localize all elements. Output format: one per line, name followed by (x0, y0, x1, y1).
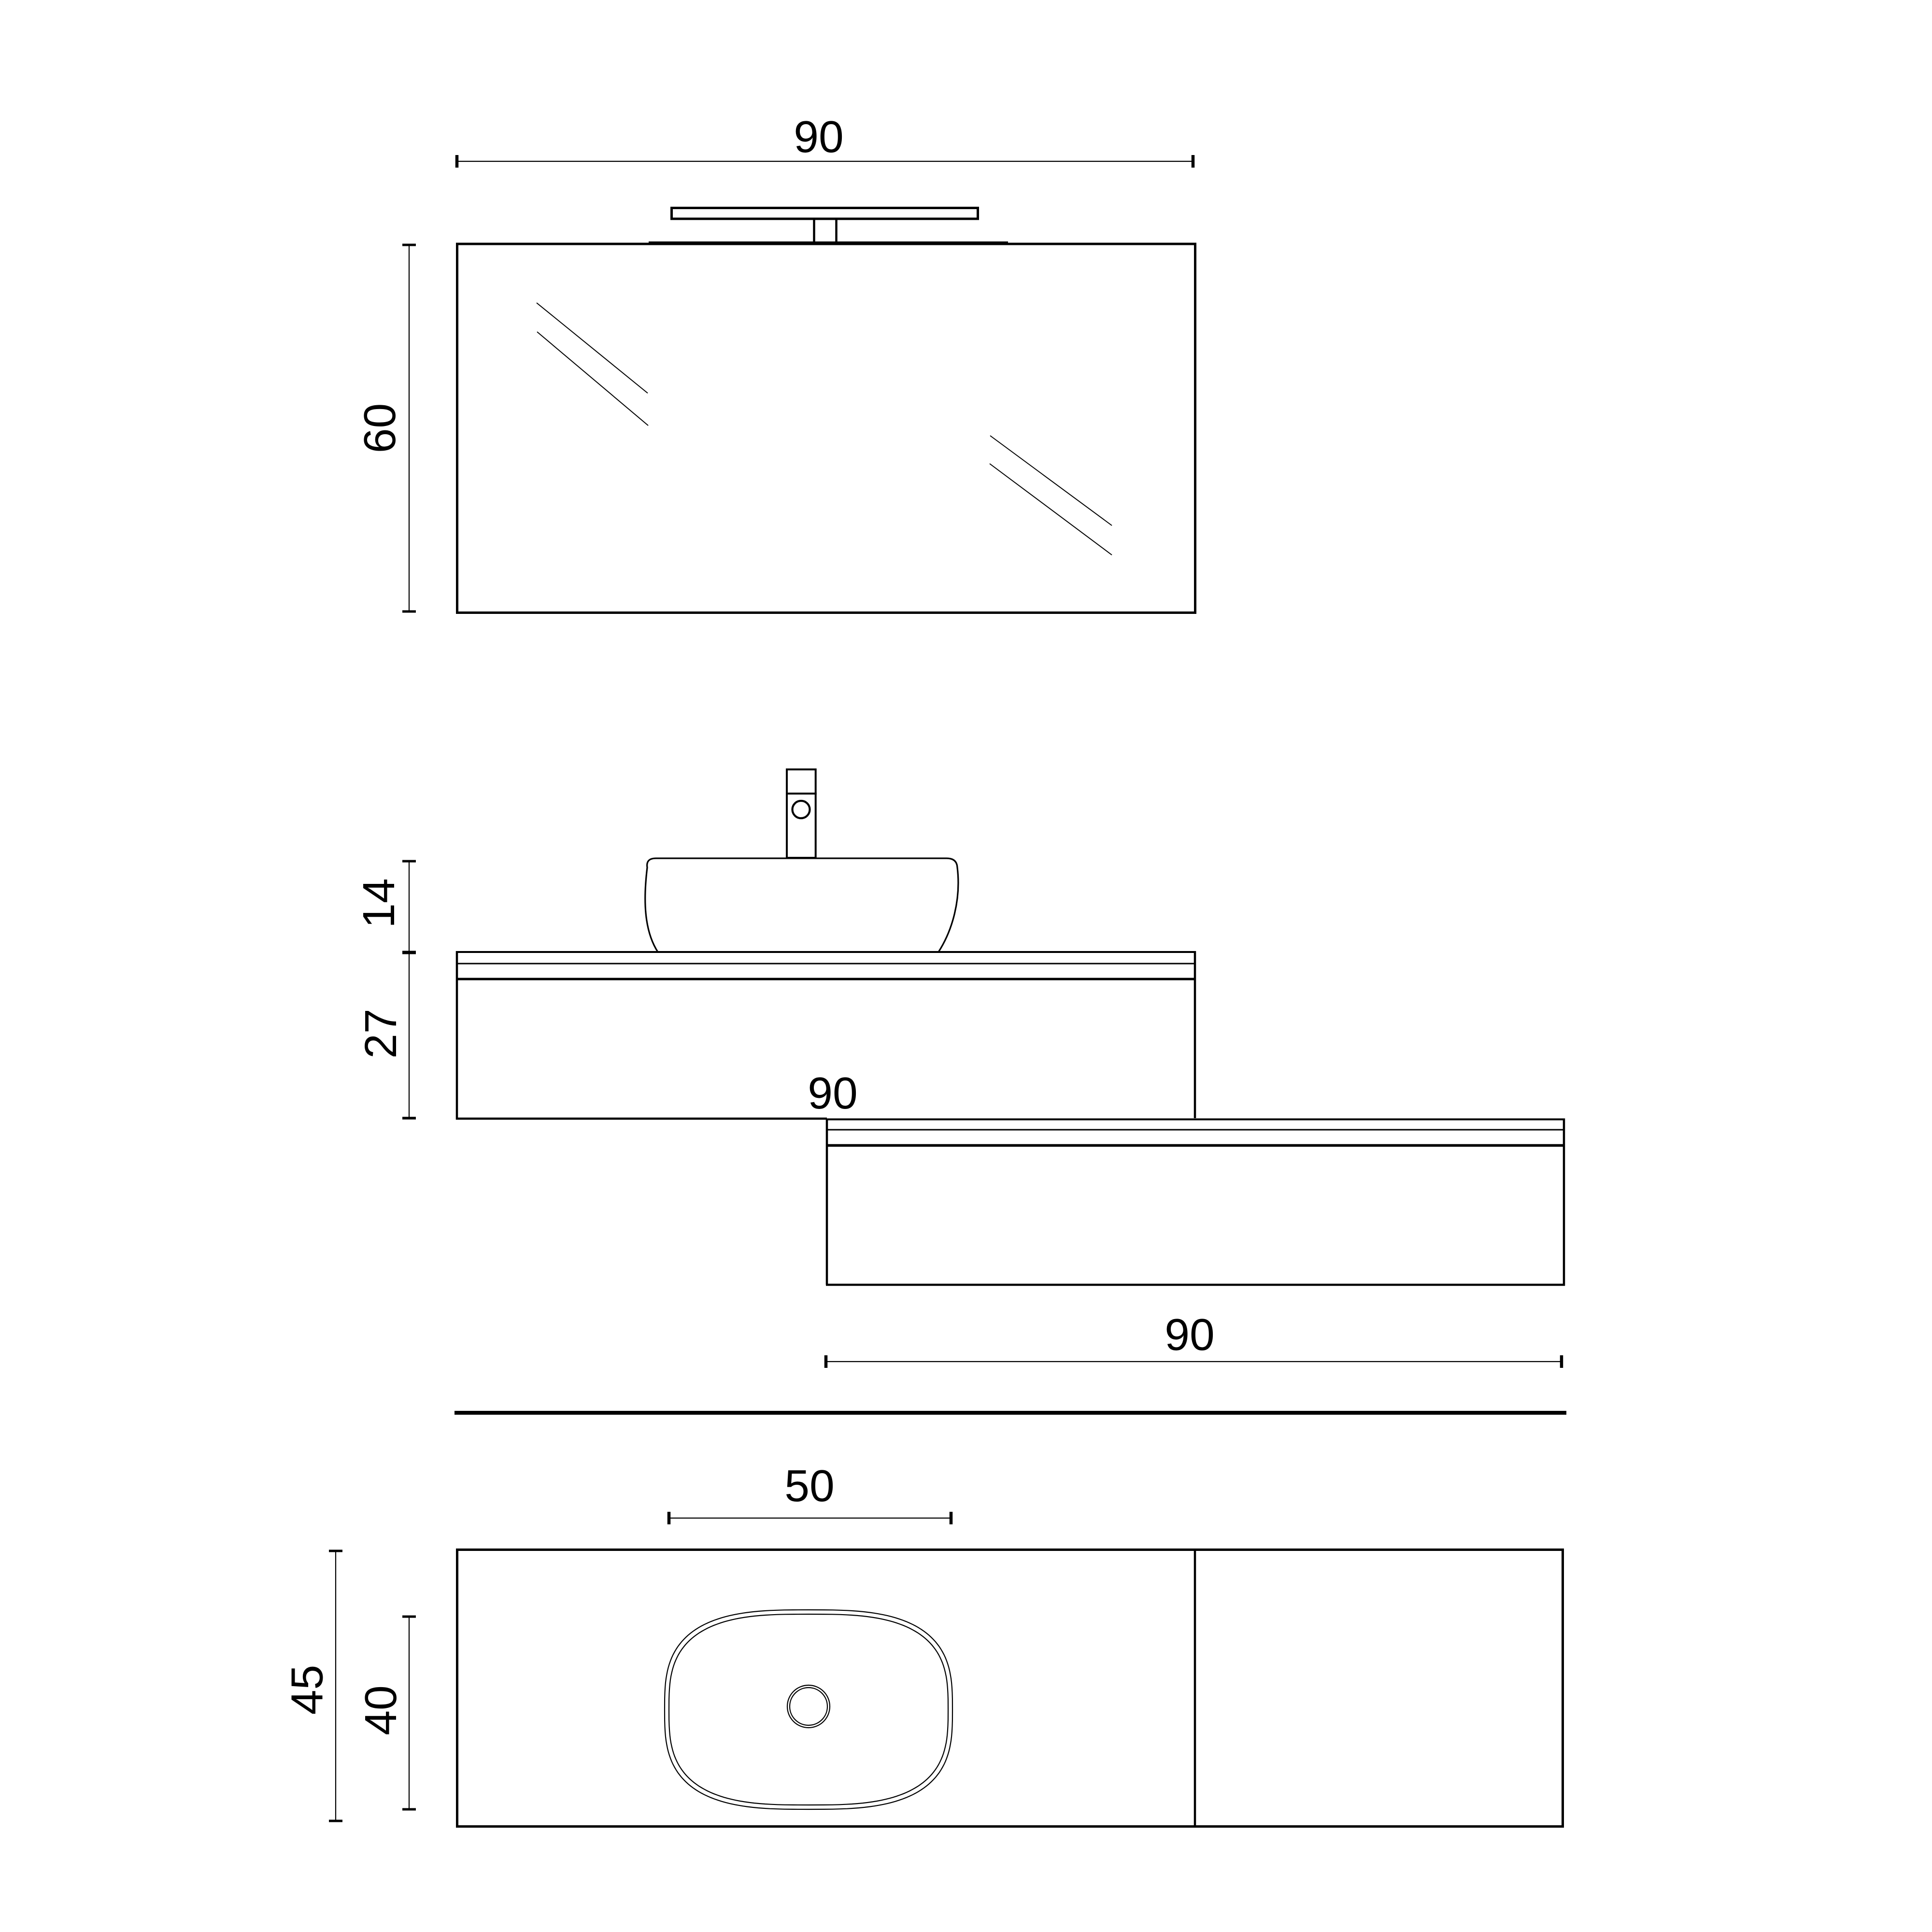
svg-text:14: 14 (354, 878, 404, 928)
svg-text:90: 90 (794, 112, 843, 162)
svg-text:90: 90 (1165, 1309, 1214, 1360)
svg-text:60: 60 (355, 403, 405, 453)
svg-text:45: 45 (282, 1665, 332, 1715)
svg-text:27: 27 (355, 1009, 406, 1058)
svg-text:90: 90 (808, 1068, 857, 1118)
svg-text:40: 40 (355, 1685, 406, 1735)
svg-text:50: 50 (784, 1461, 834, 1511)
